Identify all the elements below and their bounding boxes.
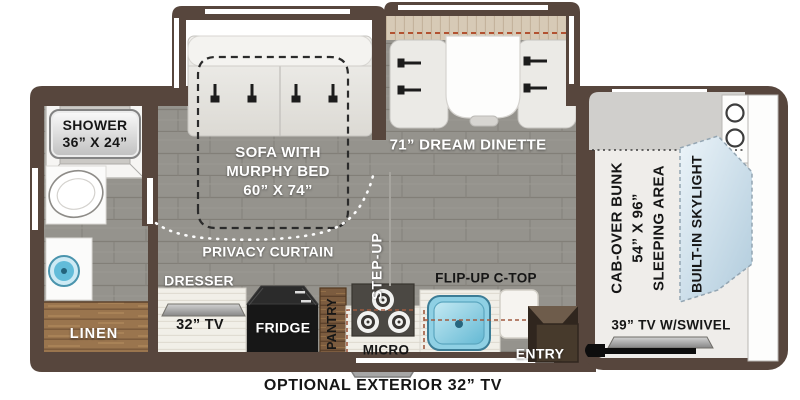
micro-label: MICRO bbox=[363, 343, 410, 360]
pantry-label: PANTRY bbox=[325, 298, 341, 350]
sofa-murphy-bed bbox=[188, 36, 372, 136]
dinette-label: 71” DREAM DINETTE bbox=[390, 137, 547, 156]
flip-up-ctop-label: FLIP-UP C-TOP bbox=[435, 271, 537, 288]
tv-39-swivel-arm bbox=[598, 348, 696, 354]
bath-sink bbox=[46, 238, 92, 300]
optional-exterior-tv-label: OPTIONAL EXTERIOR 32” TV bbox=[264, 376, 502, 396]
privacy-curtain-label: PRIVACY CURTAIN bbox=[202, 243, 333, 261]
tv-32-shape bbox=[162, 304, 245, 316]
floorplan-graphic bbox=[0, 0, 800, 400]
shower-label-line2: 36” X 24” bbox=[63, 134, 128, 151]
entry-label: ENTRY bbox=[516, 345, 564, 363]
dinette-bench-left bbox=[390, 40, 448, 128]
rv-floorplan: SHOWER 36” X 24” SOFA WITH MURPHY BED 60… bbox=[0, 0, 800, 400]
shower-label-line1: SHOWER bbox=[63, 117, 128, 134]
toilet bbox=[44, 165, 108, 224]
cab-over-bunk-label: CAB-OVER BUNK 54” X 96” SLEEPING AREA bbox=[607, 162, 670, 293]
tv-39-shape bbox=[608, 337, 713, 348]
dinette-table-pedestal bbox=[470, 116, 498, 126]
dresser-label: DRESSER bbox=[164, 272, 234, 290]
fridge-label: FRIDGE bbox=[256, 319, 311, 337]
step-up-label: STEP-UP bbox=[368, 232, 386, 300]
cup-holder-icon bbox=[727, 105, 744, 122]
tv-39-swivel-base bbox=[585, 344, 605, 357]
dinette bbox=[390, 33, 576, 128]
sofa-label: SOFA WITH MURPHY BED 60” X 74” bbox=[226, 144, 330, 200]
cup-holder-icon bbox=[727, 130, 744, 147]
kitchen-sink bbox=[428, 296, 490, 350]
linen-label: LINEN bbox=[70, 325, 119, 343]
skylight-label: BUILT-IN SKYLIGHT bbox=[688, 155, 706, 293]
cab-right-strip bbox=[748, 95, 778, 361]
tv-39-label: 39” TV W/SWIVEL bbox=[611, 318, 730, 335]
dinette-table bbox=[446, 36, 520, 118]
tv-32-label: 32” TV bbox=[176, 316, 224, 334]
shower-label: SHOWER 36” X 24” bbox=[49, 109, 141, 159]
